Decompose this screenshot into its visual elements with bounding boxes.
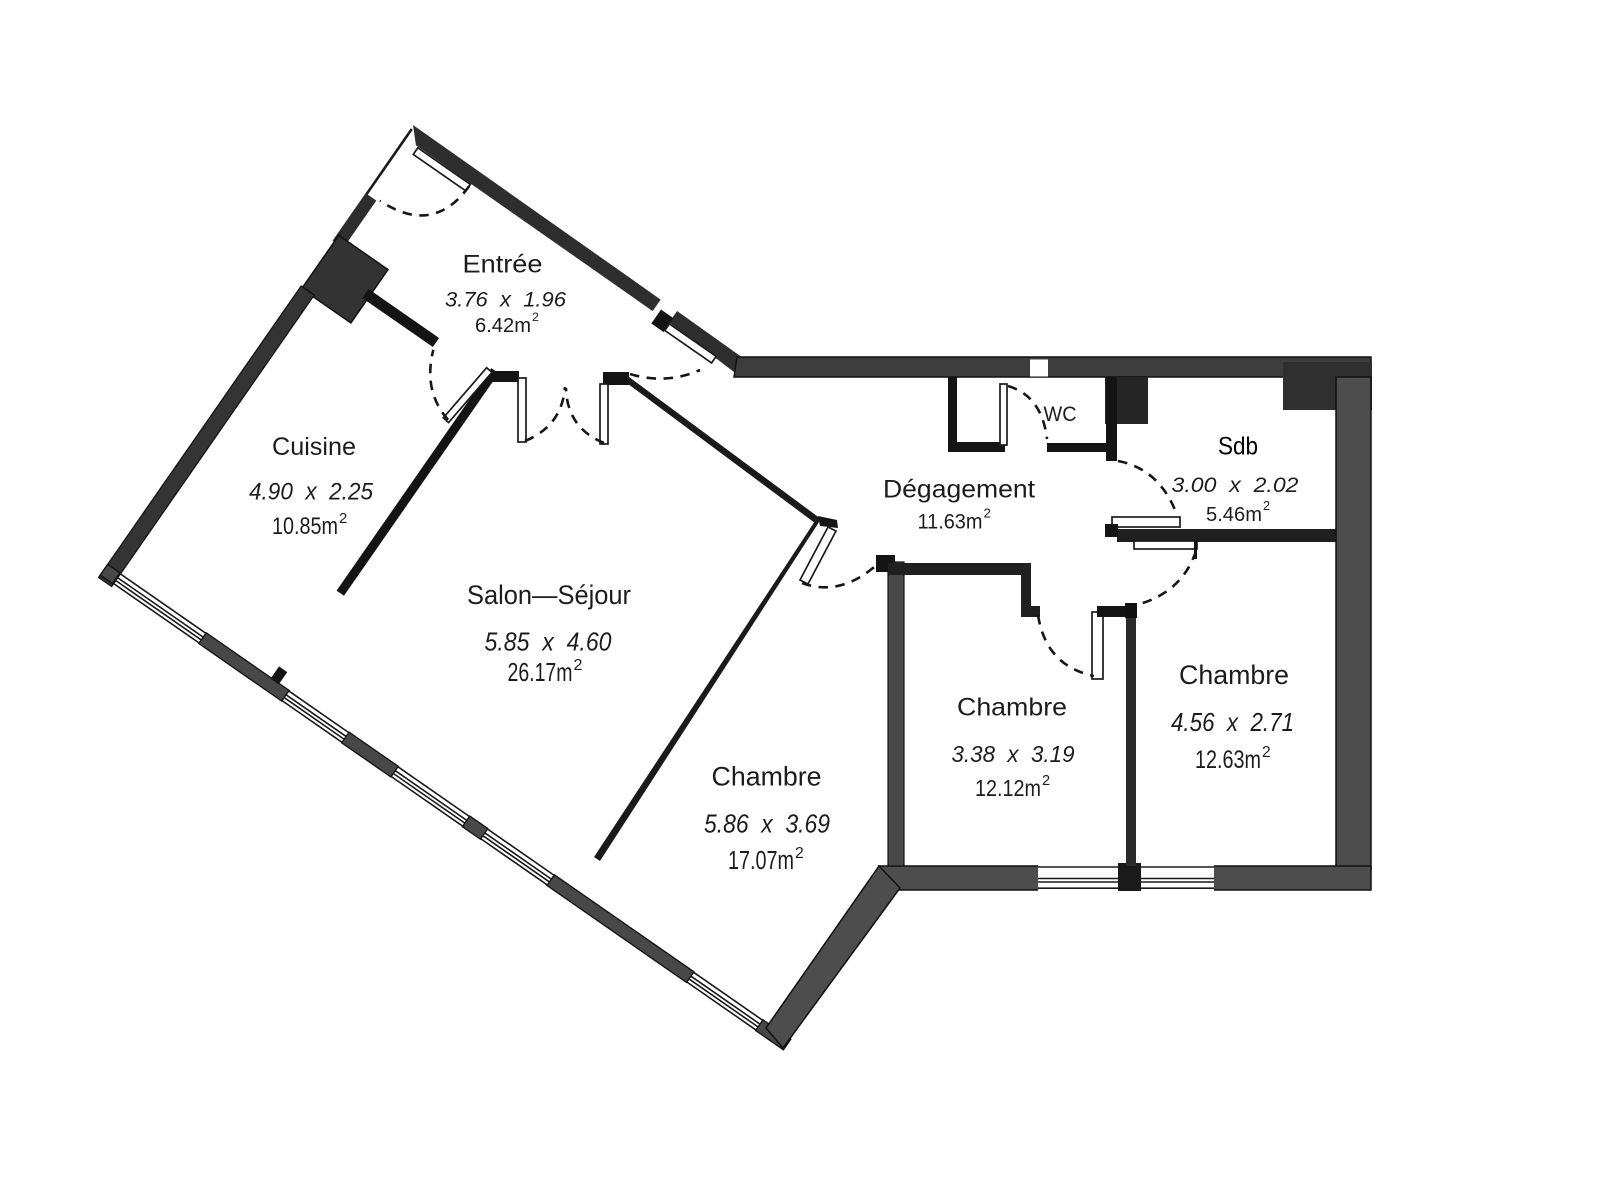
svg-text:12.63m: 12.63m [1195, 746, 1261, 774]
svg-text:4.56 x 2.71: 4.56 x 2.71 [1171, 707, 1294, 737]
svg-text:5.46m: 5.46m [1206, 503, 1262, 526]
svg-text:3.76 x 1.96: 3.76 x 1.96 [445, 288, 566, 312]
svg-text:Chambre: Chambre [1179, 660, 1289, 690]
svg-text:5.85 x 4.60: 5.85 x 4.60 [485, 627, 612, 657]
svg-text:Chambre: Chambre [957, 694, 1067, 722]
svg-text:2: 2 [1042, 773, 1050, 789]
svg-text:26.17m: 26.17m [508, 657, 573, 687]
svg-text:Dégagement: Dégagement [883, 476, 1035, 504]
svg-text:10.85m: 10.85m [272, 513, 338, 540]
svg-text:2: 2 [532, 310, 539, 324]
svg-text:12.12m: 12.12m [975, 775, 1041, 801]
svg-text:2: 2 [984, 506, 991, 521]
svg-text:17.07m: 17.07m [728, 847, 794, 875]
svg-text:2: 2 [339, 511, 347, 527]
svg-text:Cuisine: Cuisine [272, 433, 356, 461]
svg-text:2: 2 [1263, 499, 1270, 513]
svg-text:6.42m: 6.42m [475, 315, 531, 337]
svg-text:11.63m: 11.63m [918, 510, 983, 534]
svg-text:5.86 x 3.69: 5.86 x 3.69 [704, 809, 830, 839]
svg-text:2: 2 [795, 845, 804, 862]
svg-text:4.90 x 2.25: 4.90 x 2.25 [249, 479, 374, 506]
svg-text:2: 2 [574, 656, 583, 674]
svg-text:Sdb: Sdb [1218, 433, 1258, 461]
svg-text:Entrée: Entrée [463, 252, 543, 279]
svg-text:WC: WC [1044, 403, 1077, 426]
svg-text:2: 2 [1262, 744, 1271, 761]
svg-text:3.00 x 2.02: 3.00 x 2.02 [1172, 473, 1299, 497]
svg-text:Chambre: Chambre [712, 762, 822, 792]
svg-text:Salon—Séjour: Salon—Séjour [467, 580, 631, 610]
svg-text:3.38 x 3.19: 3.38 x 3.19 [952, 741, 1075, 767]
